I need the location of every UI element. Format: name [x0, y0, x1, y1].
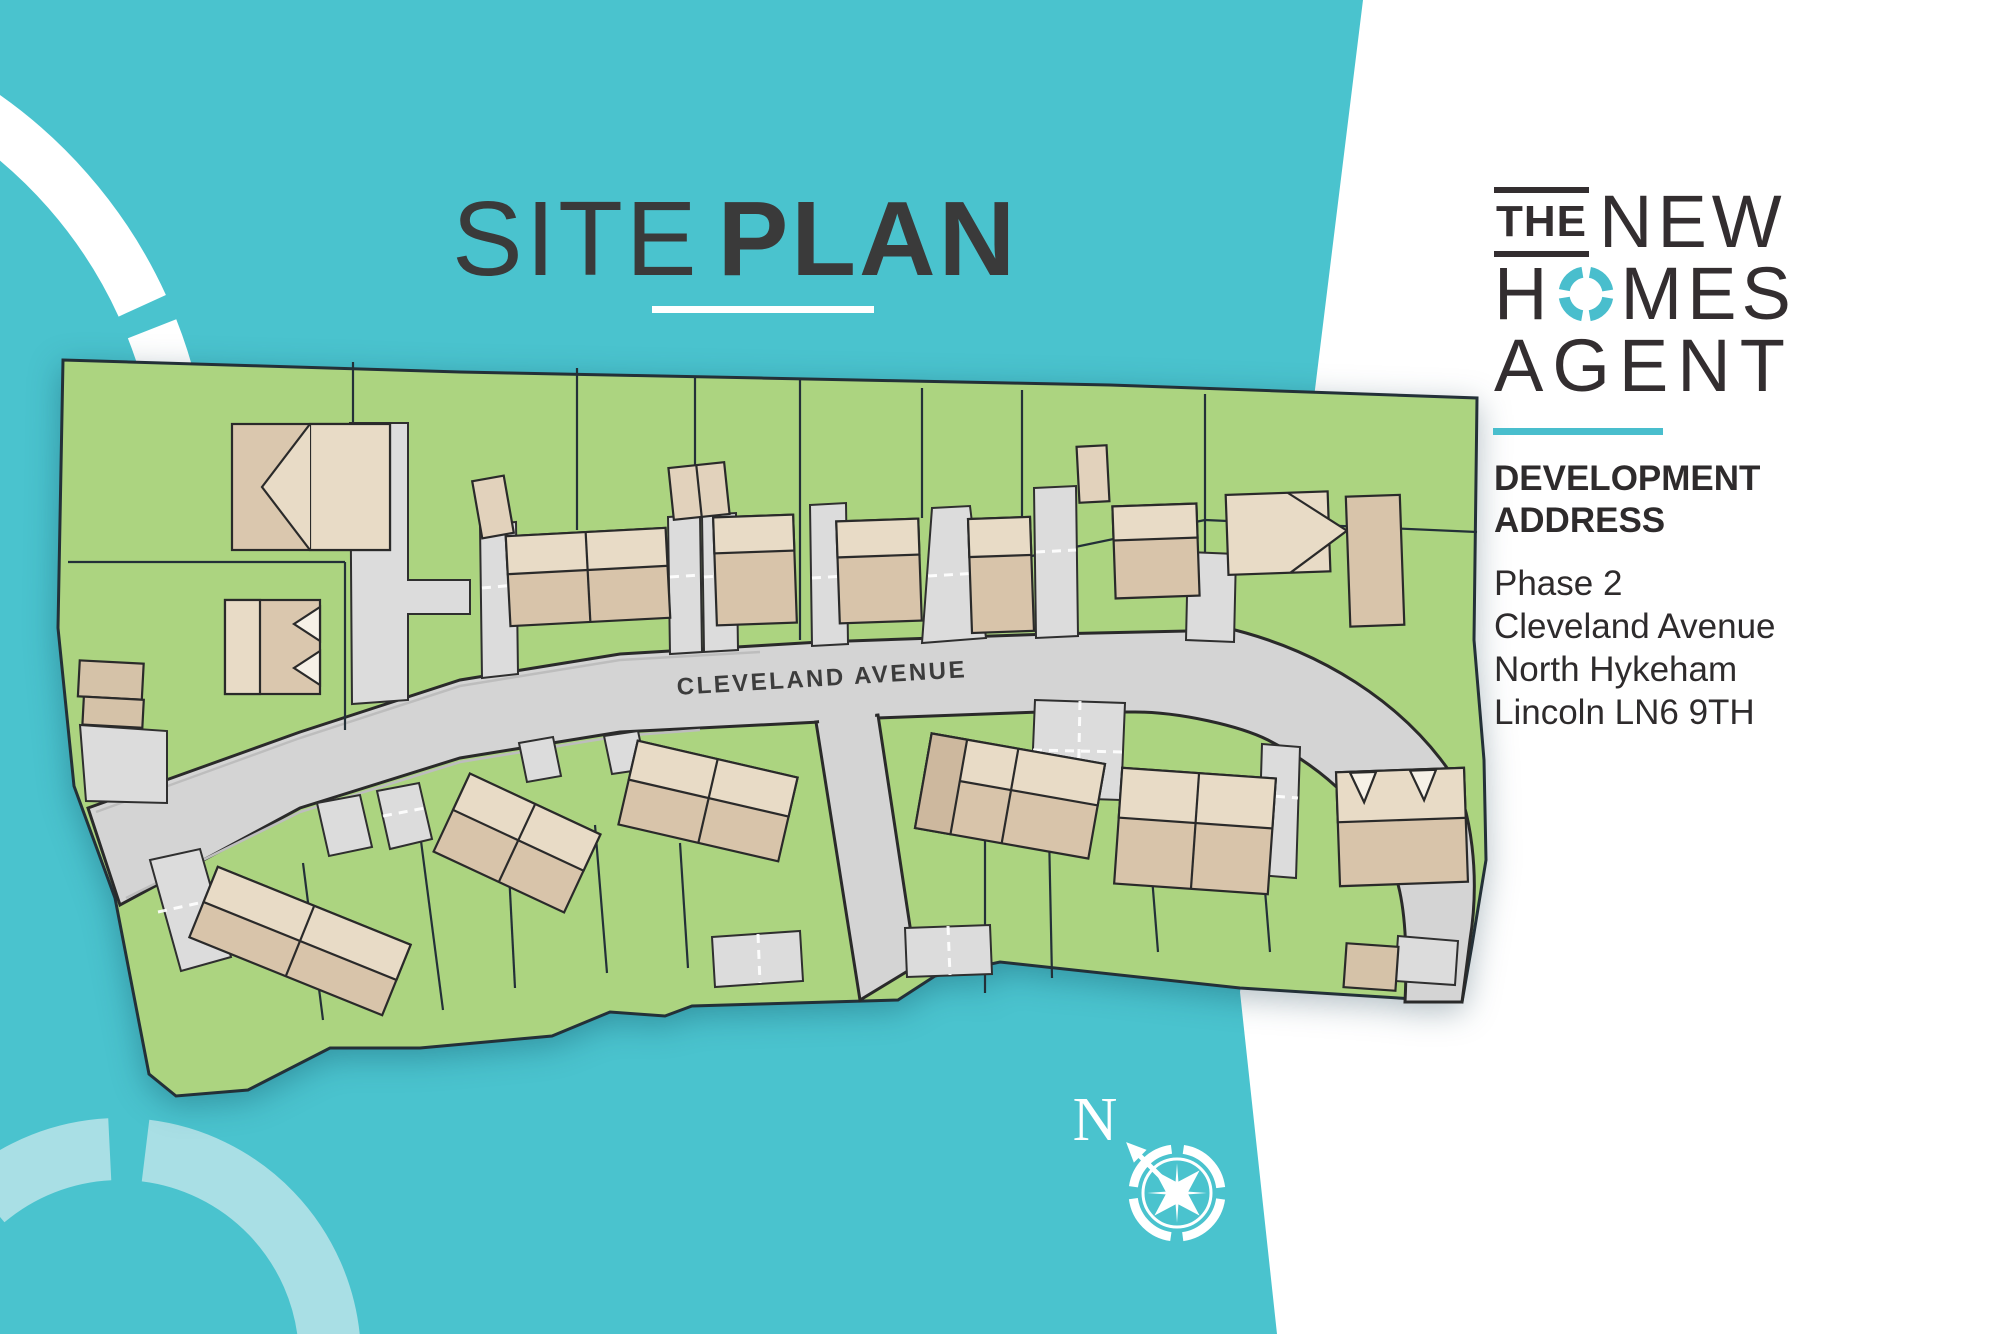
brand-logo: THE NEW H MES AGENT	[1494, 186, 1796, 402]
house-51	[836, 519, 922, 624]
page-title: SITEPLAN	[452, 186, 1018, 292]
title-word-plan: PLAN	[718, 180, 1019, 298]
logo-the: THE	[1494, 187, 1589, 257]
house-56-small	[76, 660, 145, 727]
driveway-159	[1395, 936, 1458, 985]
address-line: Lincoln LN6 9TH	[1494, 691, 1776, 734]
driveway-56	[80, 725, 167, 803]
logo-homes-h: H	[1494, 258, 1552, 330]
logo-accent-rule	[1493, 428, 1663, 435]
compass-north-label: N	[1073, 1086, 1118, 1154]
decorative-ring-bottom-left	[0, 1149, 330, 1334]
logo-agent: AGENT	[1494, 330, 1796, 402]
title-word-site: SITE	[452, 180, 700, 298]
house-50	[968, 517, 1034, 633]
title-underline	[652, 306, 874, 313]
logo-new: NEW	[1599, 186, 1787, 258]
house-52	[713, 515, 797, 626]
address-line: Cleveland Avenue	[1494, 605, 1776, 648]
house-55	[232, 424, 390, 550]
driveway-49	[1034, 486, 1078, 638]
development-address: Phase 2 Cleveland Avenue North Hykeham L…	[1494, 562, 1776, 734]
heading-line-2: ADDRESS	[1494, 500, 1760, 542]
house-56-main	[225, 600, 320, 694]
driveway-145	[519, 737, 561, 782]
garage-159	[1344, 943, 1399, 991]
development-address-heading: DEVELOPMENT ADDRESS	[1494, 458, 1760, 542]
heading-line-1: DEVELOPMENT	[1494, 458, 1760, 500]
compass: N	[1073, 1086, 1223, 1238]
driveway-53	[668, 515, 702, 654]
road-junction-patch	[818, 704, 876, 734]
address-line: Phase 2	[1494, 562, 1776, 605]
garage-53-52	[668, 462, 729, 520]
logo-homes: H MES	[1494, 258, 1796, 330]
house-155-157	[1114, 768, 1276, 894]
logo-homes-mes: MES	[1620, 258, 1795, 330]
logo-o-ring-icon	[1557, 265, 1615, 323]
address-line: North Hykeham	[1494, 648, 1776, 691]
site-plan-poster: CLEVELAND AVENUE	[0, 0, 2000, 1334]
site-plan-map: CLEVELAND AVENUE	[58, 360, 1486, 1096]
house-159	[1336, 768, 1468, 886]
compass-rose	[1103, 1119, 1222, 1238]
house-49	[1112, 504, 1199, 599]
garage-49	[1077, 445, 1110, 502]
house-54-53	[506, 528, 670, 626]
